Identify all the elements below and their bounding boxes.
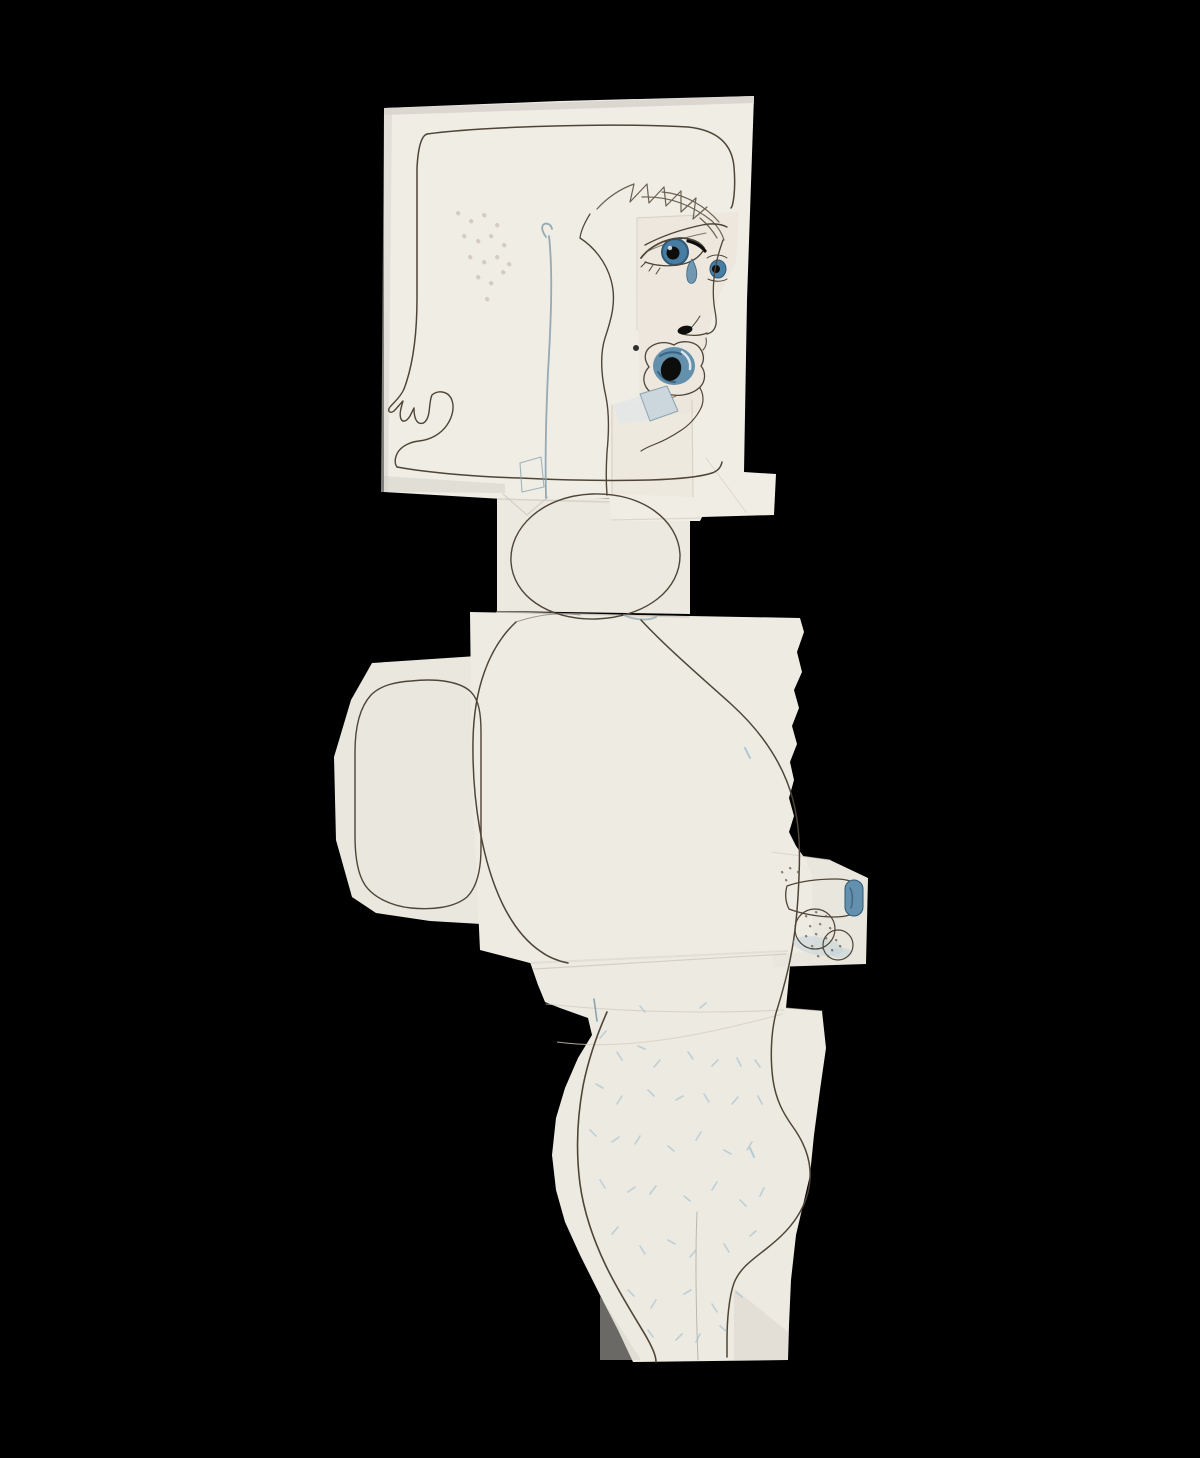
artwork-photograph (0, 0, 1200, 1458)
penis-tip-blue (845, 880, 863, 916)
torso-sheet (470, 612, 813, 963)
mole (633, 345, 639, 351)
head-sheet (384, 96, 776, 521)
collage-figure (0, 0, 1200, 1458)
testicle-wash-small (830, 948, 852, 958)
eye-highlight (668, 246, 672, 250)
left-arm-panel (334, 656, 481, 924)
